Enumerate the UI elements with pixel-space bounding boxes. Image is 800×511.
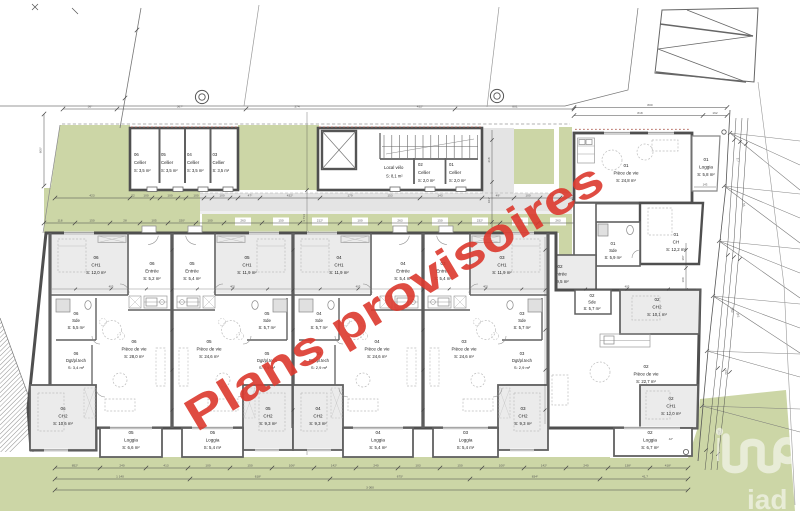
svg-text:S: 24,6 m²: S: 24,6 m² <box>454 354 474 359</box>
svg-text:100: 100 <box>167 194 172 198</box>
svg-text:CH1: CH1 <box>242 262 252 267</box>
svg-text:Loggia: Loggia <box>643 437 657 442</box>
svg-text:04: 04 <box>315 406 321 411</box>
svg-text:S: 12,2 m²: S: 12,2 m² <box>666 247 686 252</box>
svg-text:S: 10,6 m²: S: 10,6 m² <box>53 421 73 426</box>
svg-text:Dgt/pl.tech: Dgt/pl.tech <box>512 358 533 363</box>
svg-text:47°: 47° <box>248 194 253 198</box>
svg-text:179: 179 <box>347 194 352 198</box>
svg-text:405: 405 <box>625 284 630 288</box>
svg-text:05: 05 <box>189 261 195 266</box>
svg-text:02: 02 <box>668 396 674 401</box>
svg-text:Cellier: Cellier <box>213 160 226 165</box>
svg-text:800: 800 <box>647 103 652 107</box>
svg-text:S: 5,4 m²: S: 5,4 m² <box>369 445 387 450</box>
svg-text:142°: 142° <box>541 464 548 468</box>
svg-text:100: 100 <box>207 219 212 223</box>
svg-text:150: 150 <box>247 464 252 468</box>
svg-text:05: 05 <box>265 406 271 411</box>
svg-text:Pièce de vie: Pièce de vie <box>451 346 476 351</box>
svg-text:218: 218 <box>487 157 491 162</box>
svg-text:320°: 320° <box>179 219 186 223</box>
svg-text:S: 6,6 m²: S: 6,6 m² <box>122 445 140 450</box>
svg-text:Dgt/pl.tech: Dgt/pl.tech <box>66 358 87 363</box>
svg-text:100: 100 <box>193 194 198 198</box>
svg-text:367°: 367° <box>177 105 184 109</box>
svg-text:Sde: Sde <box>588 300 596 305</box>
svg-text:CH2: CH2 <box>652 304 662 309</box>
svg-text:S: 24,6 m²: S: 24,6 m² <box>367 354 387 359</box>
svg-text:432°: 432° <box>287 194 294 198</box>
svg-text:S: 6,7 m²: S: 6,7 m² <box>641 445 659 450</box>
svg-text:05: 05 <box>244 255 250 260</box>
svg-text:240: 240 <box>373 464 378 468</box>
svg-text:432°: 432° <box>417 105 424 109</box>
svg-text:03: 03 <box>461 339 467 344</box>
svg-text:S: 3,5 m²: S: 3,5 m² <box>187 168 204 173</box>
svg-text:100: 100 <box>219 194 224 198</box>
svg-text:Cellier: Cellier <box>161 160 174 165</box>
svg-text:CH2: CH2 <box>58 413 68 418</box>
svg-text:3 714: 3 714 <box>302 214 306 222</box>
svg-text:01: 01 <box>673 232 679 237</box>
svg-text:06: 06 <box>93 255 99 260</box>
svg-text:1 140: 1 140 <box>116 475 124 479</box>
svg-text:S: 12,0 m²: S: 12,0 m² <box>86 270 106 275</box>
svg-text:04: 04 <box>187 152 192 157</box>
svg-text:S: 5,8 m²: S: 5,8 m² <box>697 172 715 177</box>
svg-text:CH1: CH1 <box>666 403 676 408</box>
svg-text:iad: iad <box>747 484 787 511</box>
svg-text:240: 240 <box>583 464 588 468</box>
svg-text:03: 03 <box>213 152 218 157</box>
svg-text:834°: 834° <box>532 475 539 479</box>
svg-text:Loggia: Loggia <box>371 437 385 442</box>
svg-text:36°: 36° <box>88 105 93 109</box>
svg-text:263: 263 <box>397 219 402 223</box>
svg-text:S: 5,7 m²: S: 5,7 m² <box>259 325 277 330</box>
svg-text:Loggia: Loggia <box>124 437 138 442</box>
svg-text:S: 3,4 m²: S: 3,4 m² <box>68 365 85 370</box>
svg-text:618°: 618° <box>255 475 262 479</box>
svg-text:423: 423 <box>89 194 94 198</box>
svg-text:02: 02 <box>647 430 653 435</box>
svg-text:S: 8,1 m²: S: 8,1 m² <box>386 174 403 179</box>
svg-text:03: 03 <box>463 430 469 435</box>
svg-text:06: 06 <box>74 311 79 316</box>
svg-text:Entrée: Entrée <box>145 268 159 273</box>
svg-text:04: 04 <box>374 339 380 344</box>
svg-text:S: 5,9 m²: S: 5,9 m² <box>605 255 623 260</box>
svg-text:418°: 418° <box>665 464 672 468</box>
svg-text:150: 150 <box>278 219 283 223</box>
svg-text:Local vélo: Local vélo <box>384 165 404 170</box>
svg-text:06: 06 <box>134 152 139 157</box>
svg-text:05: 05 <box>265 311 270 316</box>
svg-text:Sde: Sde <box>72 318 80 323</box>
svg-text:S: 5,4 m²: S: 5,4 m² <box>183 276 201 281</box>
svg-text:100: 100 <box>357 219 362 223</box>
svg-text:S: 9,3 m²: S: 9,3 m² <box>309 421 327 426</box>
svg-text:405: 405 <box>483 284 488 288</box>
svg-text:41,7: 41,7 <box>642 475 648 479</box>
svg-text:852°: 852° <box>72 464 79 468</box>
svg-text:Pièce de vie: Pièce de vie <box>613 170 638 175</box>
svg-text:01: 01 <box>611 241 616 246</box>
svg-text:Sde: Sde <box>518 318 526 323</box>
svg-text:100°: 100° <box>499 464 506 468</box>
svg-text:S: 3,5 m²: S: 3,5 m² <box>134 168 151 173</box>
svg-text:Loggia: Loggia <box>459 437 473 442</box>
svg-text:413: 413 <box>163 464 168 468</box>
svg-text:150: 150 <box>89 219 94 223</box>
svg-text:405: 405 <box>230 284 235 288</box>
svg-text:100: 100 <box>205 464 210 468</box>
svg-text:387: 387 <box>681 255 685 260</box>
svg-text:Loggia: Loggia <box>699 164 713 169</box>
svg-text:142°: 142° <box>331 464 338 468</box>
svg-text:28: 28 <box>123 219 127 223</box>
svg-text:01: 01 <box>703 157 709 162</box>
svg-text:S: 9,3 m²: S: 9,3 m² <box>514 421 532 426</box>
svg-text:Cellier: Cellier <box>418 170 431 175</box>
svg-text:42°: 42° <box>669 437 674 441</box>
svg-text:06: 06 <box>60 406 66 411</box>
svg-text:06: 06 <box>74 351 79 356</box>
svg-text:05: 05 <box>206 339 212 344</box>
svg-text:Cellier: Cellier <box>134 160 147 165</box>
svg-text:03: 03 <box>520 311 525 316</box>
svg-text:Cellier: Cellier <box>187 160 200 165</box>
svg-text:100: 100 <box>681 277 685 282</box>
svg-text:150: 150 <box>730 307 735 313</box>
svg-text:100: 100 <box>143 194 148 198</box>
svg-text:S: 11,9 m²: S: 11,9 m² <box>237 270 257 275</box>
svg-text:S: 5,7 m²: S: 5,7 m² <box>584 306 602 311</box>
svg-text:S: 28,0 m²: S: 28,0 m² <box>124 354 144 359</box>
svg-text:212°: 212° <box>317 219 324 223</box>
svg-text:S: 22,7 m²: S: 22,7 m² <box>636 379 656 384</box>
svg-text:S: 5,7 m²: S: 5,7 m² <box>514 325 532 330</box>
svg-text:S: 3,5 m²: S: 3,5 m² <box>213 168 230 173</box>
svg-text:01: 01 <box>449 162 454 167</box>
svg-text:S: 2,0 m²: S: 2,0 m² <box>418 178 435 183</box>
svg-text:S: 10,1 m²: S: 10,1 m² <box>647 312 667 317</box>
svg-text:02: 02 <box>557 264 563 269</box>
svg-text:01: 01 <box>623 163 629 168</box>
svg-text:S: 3,5 m²: S: 3,5 m² <box>161 168 178 173</box>
svg-text:Sde: Sde <box>263 318 271 323</box>
svg-text:02: 02 <box>643 364 649 369</box>
svg-text:153: 153 <box>387 194 392 198</box>
svg-text:818: 818 <box>637 111 642 115</box>
svg-text:S: 24,8 m²: S: 24,8 m² <box>616 178 636 183</box>
svg-text:S: 5,4 m²: S: 5,4 m² <box>204 445 222 450</box>
svg-text:Sde: Sde <box>609 248 617 253</box>
svg-text:Cellier: Cellier <box>449 170 462 175</box>
svg-text:S: 5,5 m²: S: 5,5 m² <box>68 325 86 330</box>
svg-text:801: 801 <box>512 105 517 109</box>
svg-text:S: 24,6 m²: S: 24,6 m² <box>199 354 219 359</box>
svg-text:Pièce de vie: Pièce de vie <box>121 346 146 351</box>
svg-text:02: 02 <box>418 162 423 167</box>
svg-text:Pièce de vie: Pièce de vie <box>633 371 658 376</box>
svg-text:S: 2,0 m²: S: 2,0 m² <box>449 178 466 183</box>
svg-text:103°: 103° <box>487 196 491 203</box>
svg-text:06: 06 <box>149 261 155 266</box>
svg-text:02: 02 <box>590 293 595 298</box>
svg-text:138°: 138° <box>625 464 632 468</box>
svg-text:263: 263 <box>240 219 245 223</box>
svg-text:CH: CH <box>673 239 680 244</box>
svg-text:675°: 675° <box>397 475 404 479</box>
svg-text:106°: 106° <box>289 464 296 468</box>
svg-text:150: 150 <box>457 464 462 468</box>
svg-text:04: 04 <box>336 255 342 260</box>
svg-text:02: 02 <box>654 297 660 302</box>
svg-text:143: 143 <box>703 183 708 187</box>
svg-text:374: 374 <box>294 105 299 109</box>
svg-text:103: 103 <box>415 464 420 468</box>
svg-text:CH1: CH1 <box>91 262 101 267</box>
svg-text:CH1: CH1 <box>334 262 344 267</box>
svg-text:105: 105 <box>151 219 156 223</box>
svg-text:600°: 600° <box>39 146 43 153</box>
svg-text:143: 143 <box>437 194 442 198</box>
svg-text:04: 04 <box>375 430 381 435</box>
svg-text:118: 118 <box>58 219 63 223</box>
svg-text:22: 22 <box>131 194 135 198</box>
svg-text:CH2: CH2 <box>518 413 528 418</box>
svg-text:162: 162 <box>712 111 717 115</box>
svg-text:Pièce de vie: Pièce de vie <box>196 346 221 351</box>
svg-text:06: 06 <box>131 339 137 344</box>
svg-text:S: 11,9 m²: S: 11,9 m² <box>492 270 512 275</box>
svg-text:Entrée: Entrée <box>185 268 199 273</box>
svg-text:150: 150 <box>437 219 442 223</box>
svg-text:3 000: 3 000 <box>366 486 374 490</box>
svg-text:S: 2,9 m²: S: 2,9 m² <box>514 365 531 370</box>
svg-text:S: 5,2 m²: S: 5,2 m² <box>143 276 161 281</box>
svg-text:405: 405 <box>109 284 114 288</box>
svg-text:S: 12,0 m²: S: 12,0 m² <box>661 411 681 416</box>
svg-text:CH2: CH2 <box>313 413 323 418</box>
svg-text:S: 11,9 m²: S: 11,9 m² <box>329 270 349 275</box>
svg-text:03: 03 <box>520 406 526 411</box>
svg-text:S: 5,4 m²: S: 5,4 m² <box>457 445 475 450</box>
svg-text:240: 240 <box>119 464 124 468</box>
svg-text:Loggia: Loggia <box>206 437 220 442</box>
svg-text:CH2: CH2 <box>263 413 273 418</box>
svg-text:Pièce de vie: Pièce de vie <box>364 346 389 351</box>
svg-text:05: 05 <box>128 430 134 435</box>
svg-text:S: 9,3 m²: S: 9,3 m² <box>259 421 277 426</box>
svg-text:115: 115 <box>736 312 741 318</box>
svg-text:05: 05 <box>161 152 166 157</box>
svg-text:49°: 49° <box>496 194 501 198</box>
svg-text:03: 03 <box>520 351 525 356</box>
